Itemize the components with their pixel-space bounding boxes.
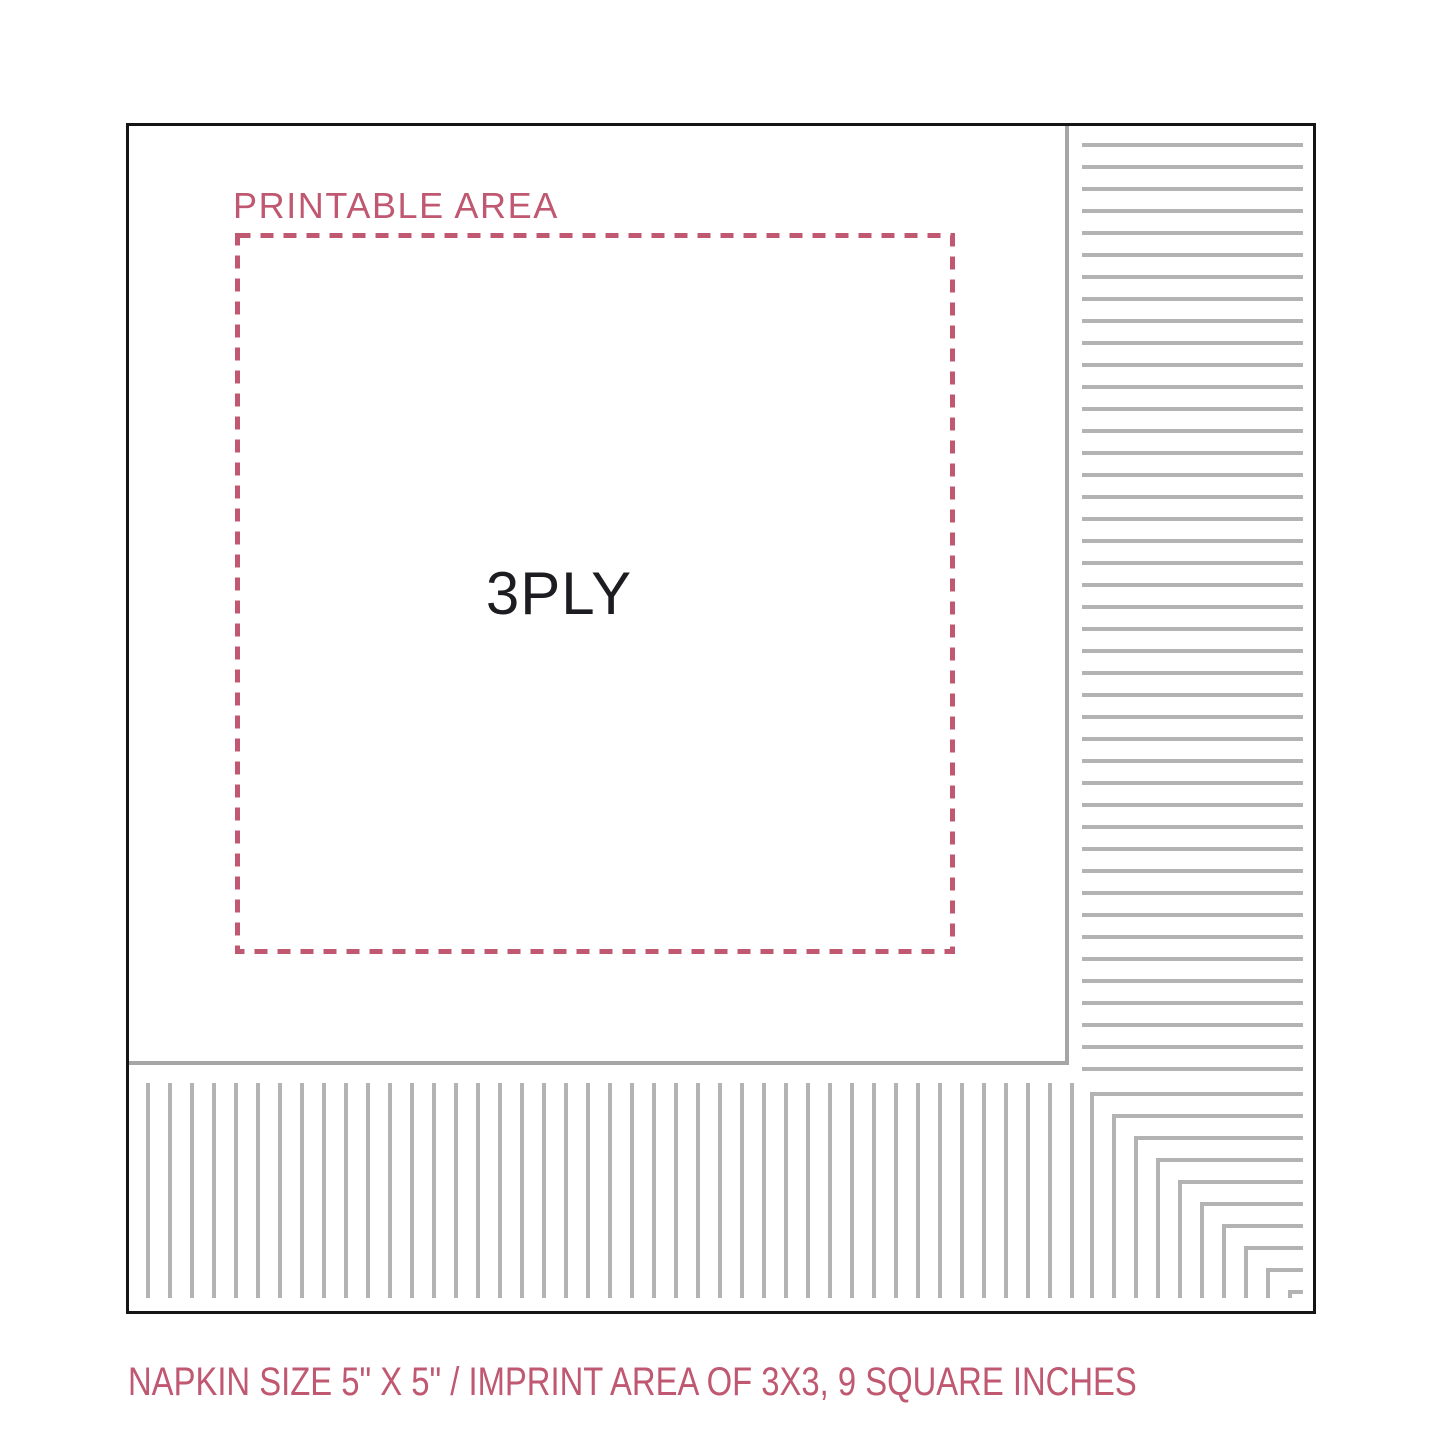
- corner-pleat-line: [1288, 1290, 1303, 1298]
- napkin-size-caption: NAPKIN SIZE 5" X 5" / IMPRINT AREA OF 3X…: [128, 1360, 1137, 1405]
- ply-label-container: 3PLY: [235, 233, 955, 954]
- ply-label: 3PLY: [486, 559, 632, 628]
- printable-area-label: PRINTABLE AREA: [233, 185, 559, 227]
